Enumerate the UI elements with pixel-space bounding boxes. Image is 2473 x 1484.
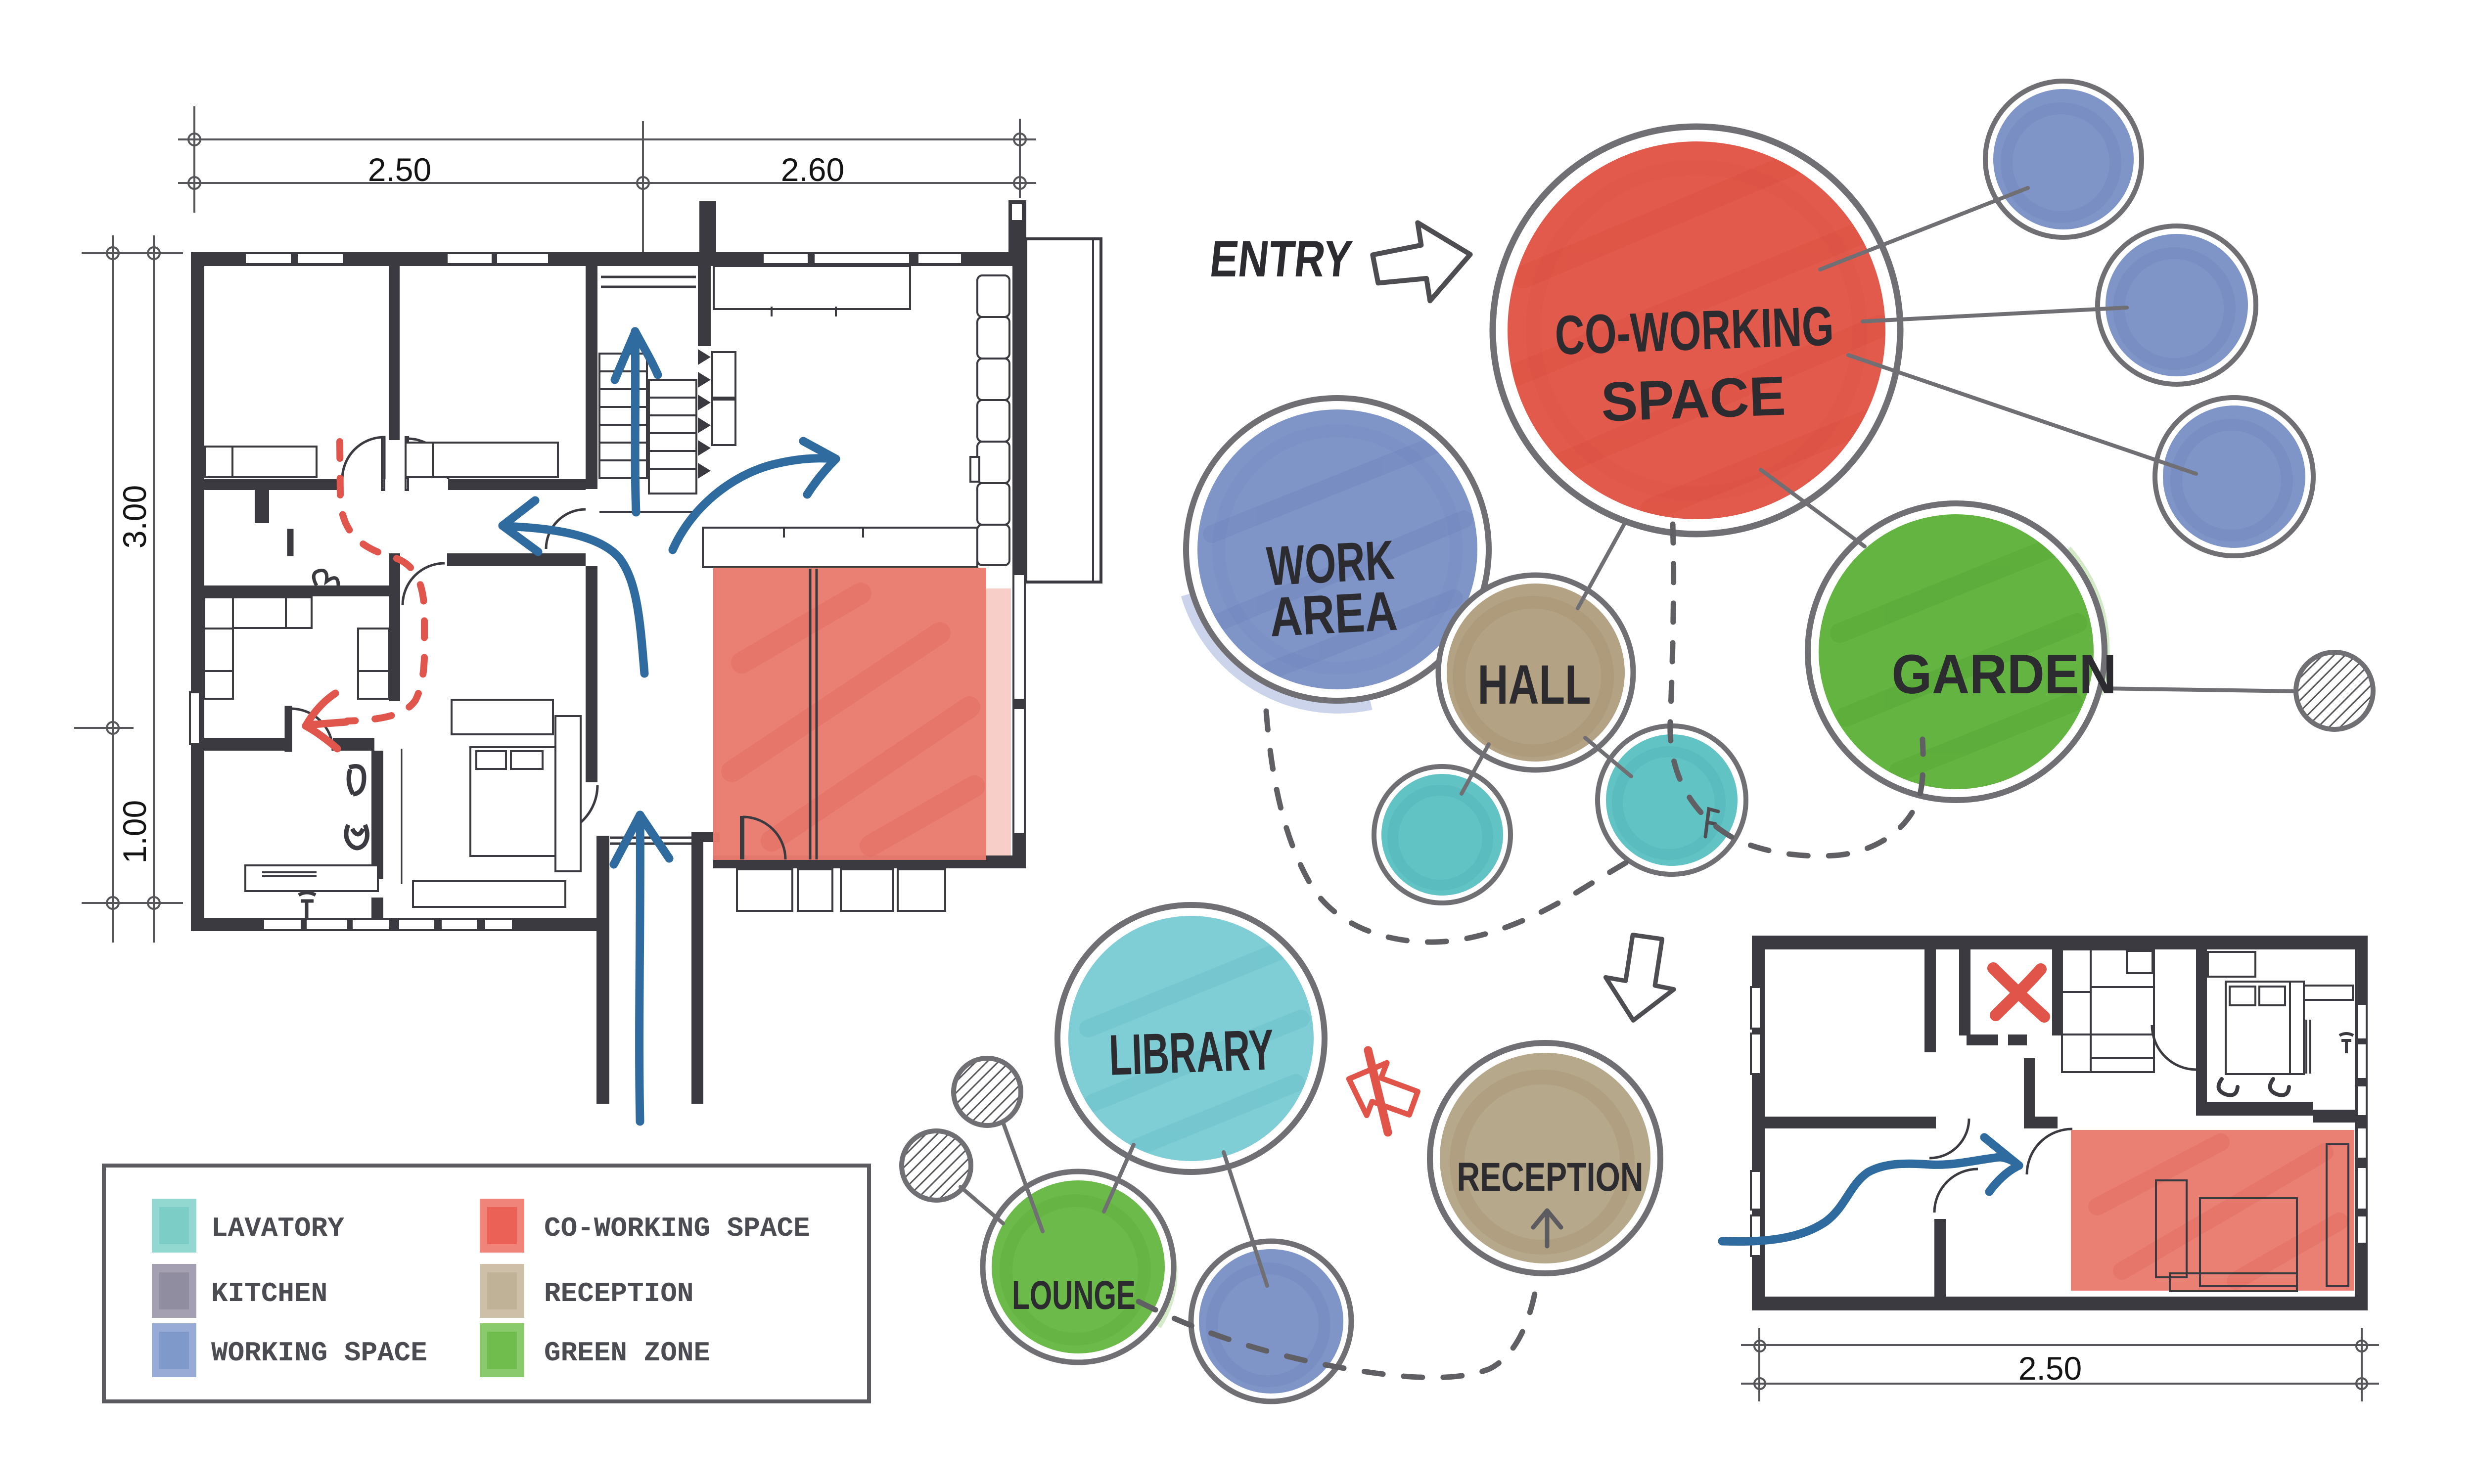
svg-text:2.50: 2.50 <box>368 151 431 188</box>
svg-text:2.60: 2.60 <box>781 151 844 188</box>
svg-text:CO-WORKING: CO-WORKING <box>1554 295 1835 366</box>
svg-text:WORKING SPACE: WORKING SPACE <box>211 1337 427 1369</box>
svg-text:1.00: 1.00 <box>116 800 153 863</box>
svg-text:ENTRY: ENTRY <box>1207 230 1355 288</box>
svg-text:RECEPTION: RECEPTION <box>1457 1155 1644 1200</box>
svg-text:AREA: AREA <box>1268 580 1399 648</box>
svg-text:GREEN ZONE: GREEN ZONE <box>544 1337 710 1369</box>
svg-text:LAVATORY: LAVATORY <box>211 1213 344 1244</box>
svg-text:KITCHEN: KITCHEN <box>211 1278 327 1309</box>
svg-text:SPACE: SPACE <box>1600 365 1786 433</box>
svg-text:HALL: HALL <box>1478 654 1591 716</box>
svg-text:LIBRARY: LIBRARY <box>1108 1017 1275 1087</box>
svg-text:CO-WORKING SPACE: CO-WORKING SPACE <box>544 1213 810 1244</box>
svg-text:3.00: 3.00 <box>116 485 153 548</box>
svg-text:LOUNGE: LOUNGE <box>1012 1273 1136 1318</box>
svg-text:RECEPTION: RECEPTION <box>544 1278 693 1309</box>
svg-text:2.50: 2.50 <box>2018 1350 2082 1387</box>
svg-text:GARDEN: GARDEN <box>1892 643 2117 705</box>
